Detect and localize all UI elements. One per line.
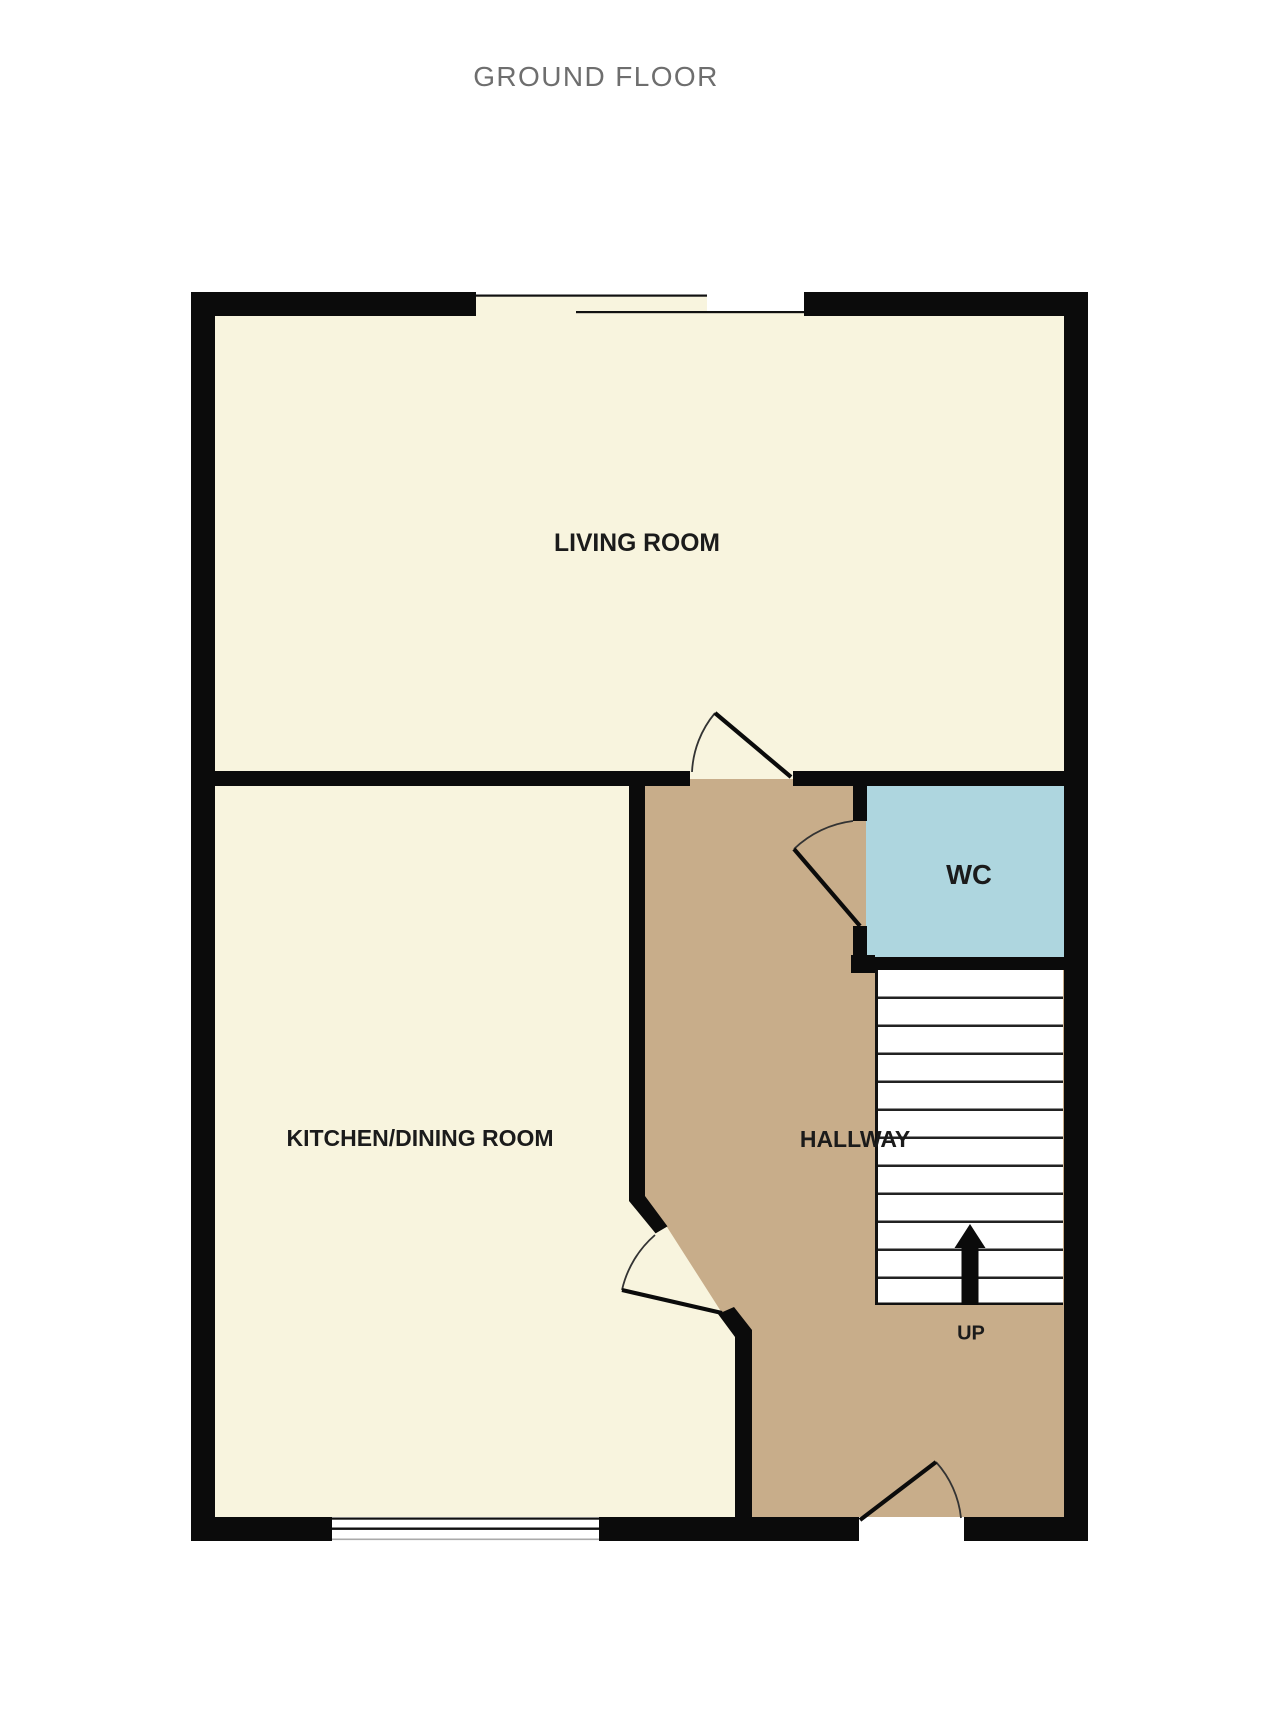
svg-text:HALLWAY: HALLWAY xyxy=(800,1126,910,1152)
svg-text:UP: UP xyxy=(957,1323,985,1345)
svg-text:WC: WC xyxy=(946,859,992,890)
svg-text:GROUND FLOOR: GROUND FLOOR xyxy=(473,61,718,92)
svg-text:KITCHEN/DINING ROOM: KITCHEN/DINING ROOM xyxy=(286,1125,553,1151)
svg-text:LIVING ROOM: LIVING ROOM xyxy=(554,530,720,557)
